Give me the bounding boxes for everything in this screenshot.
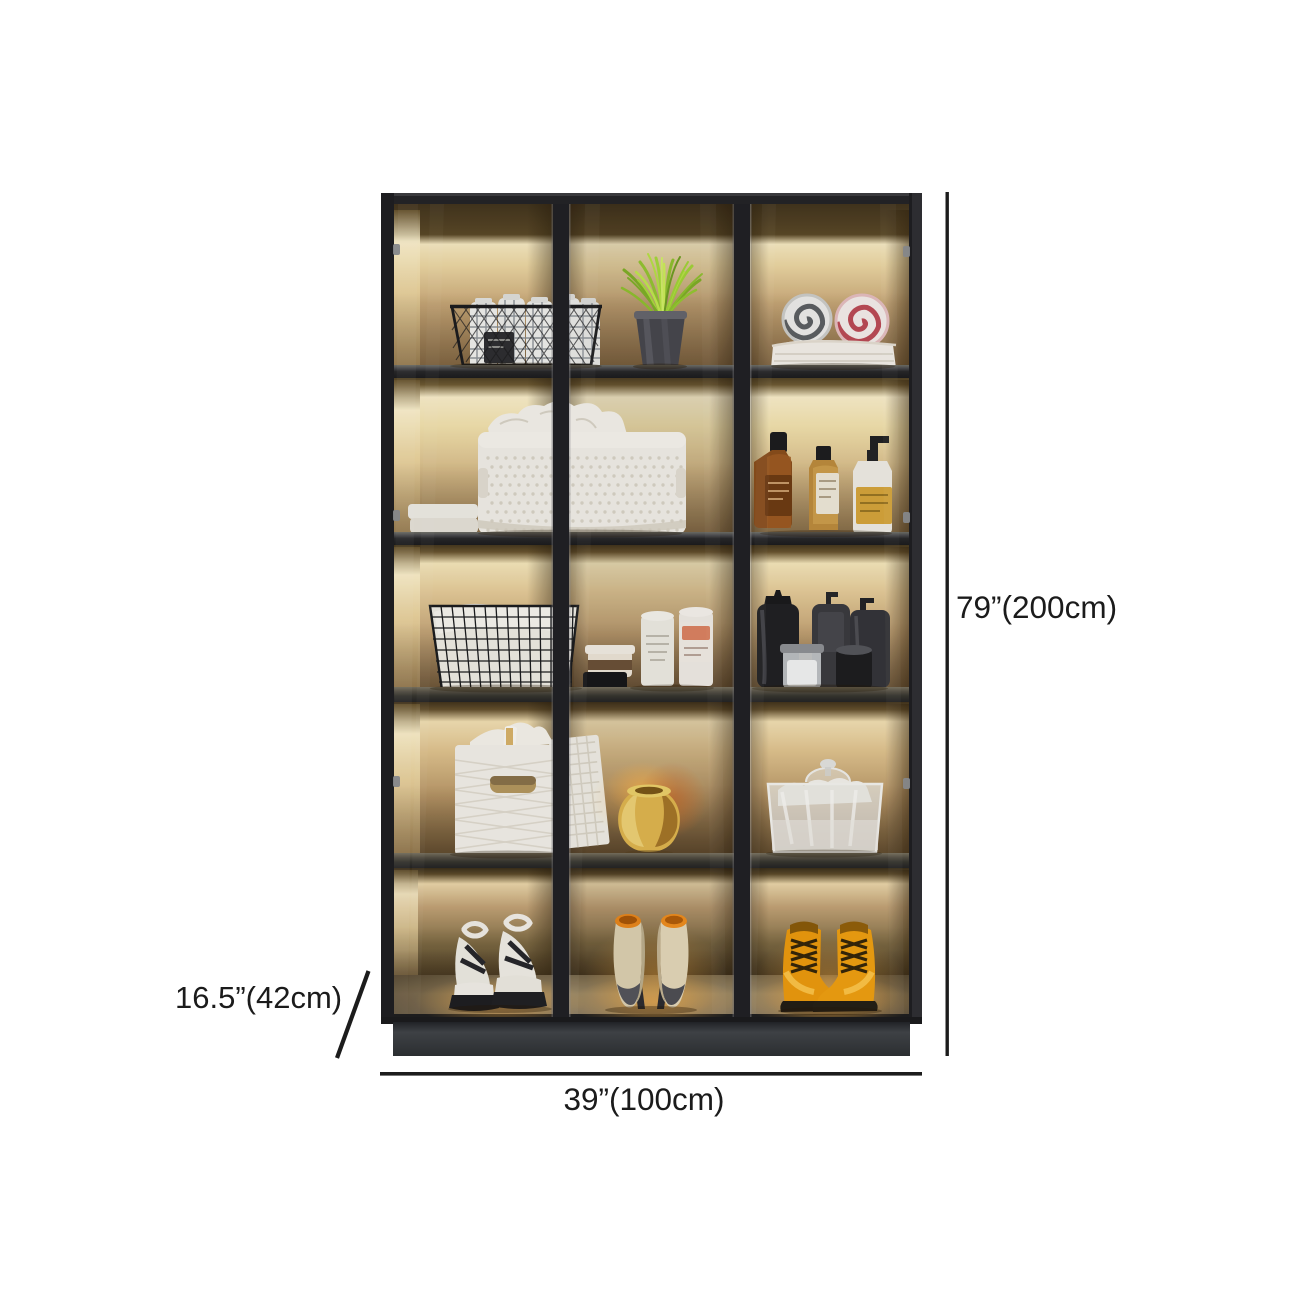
svg-text:39”(100cm): 39”(100cm)	[563, 1081, 724, 1117]
svg-text:16.5”(42cm): 16.5”(42cm)	[175, 980, 342, 1015]
svg-text:79”(200cm): 79”(200cm)	[956, 589, 1117, 625]
